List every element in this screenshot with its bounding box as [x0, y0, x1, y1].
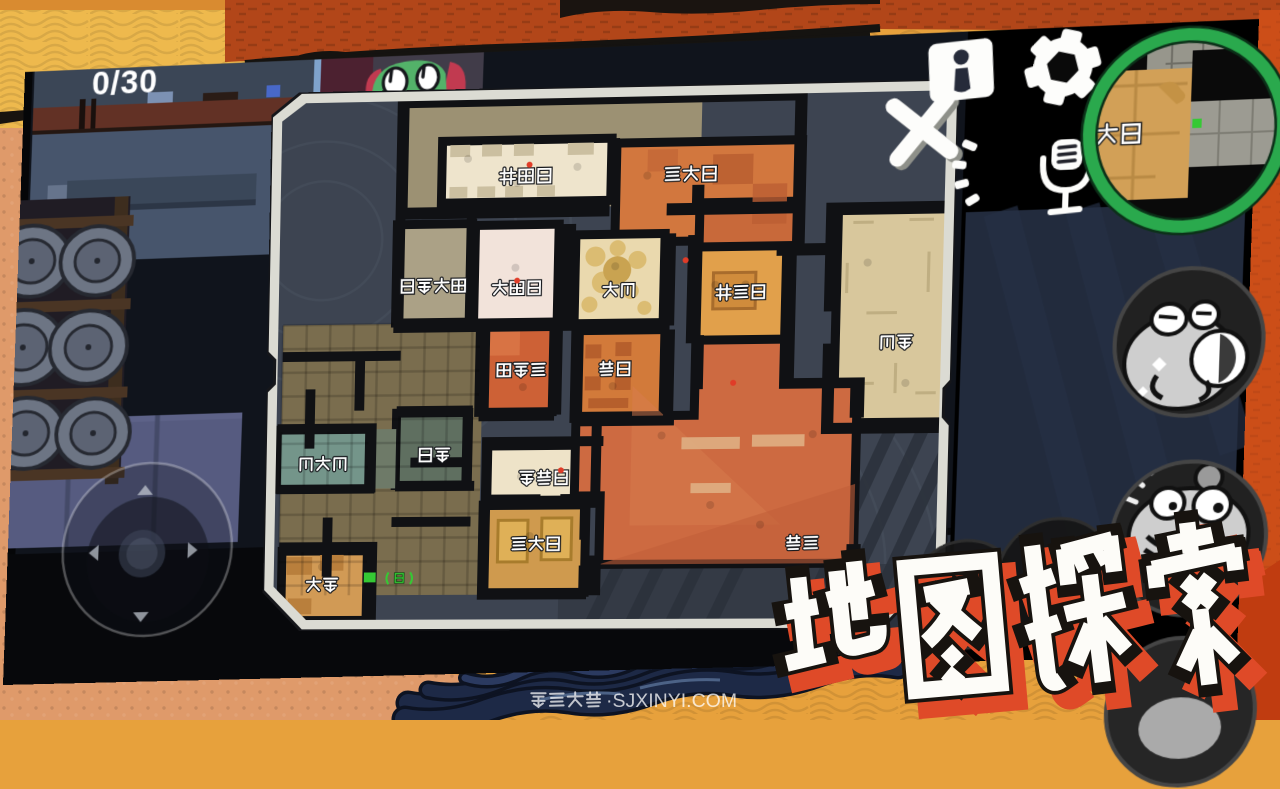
svg-text:·SJXINYI.COM: ·SJXINYI.COM	[606, 690, 737, 712]
